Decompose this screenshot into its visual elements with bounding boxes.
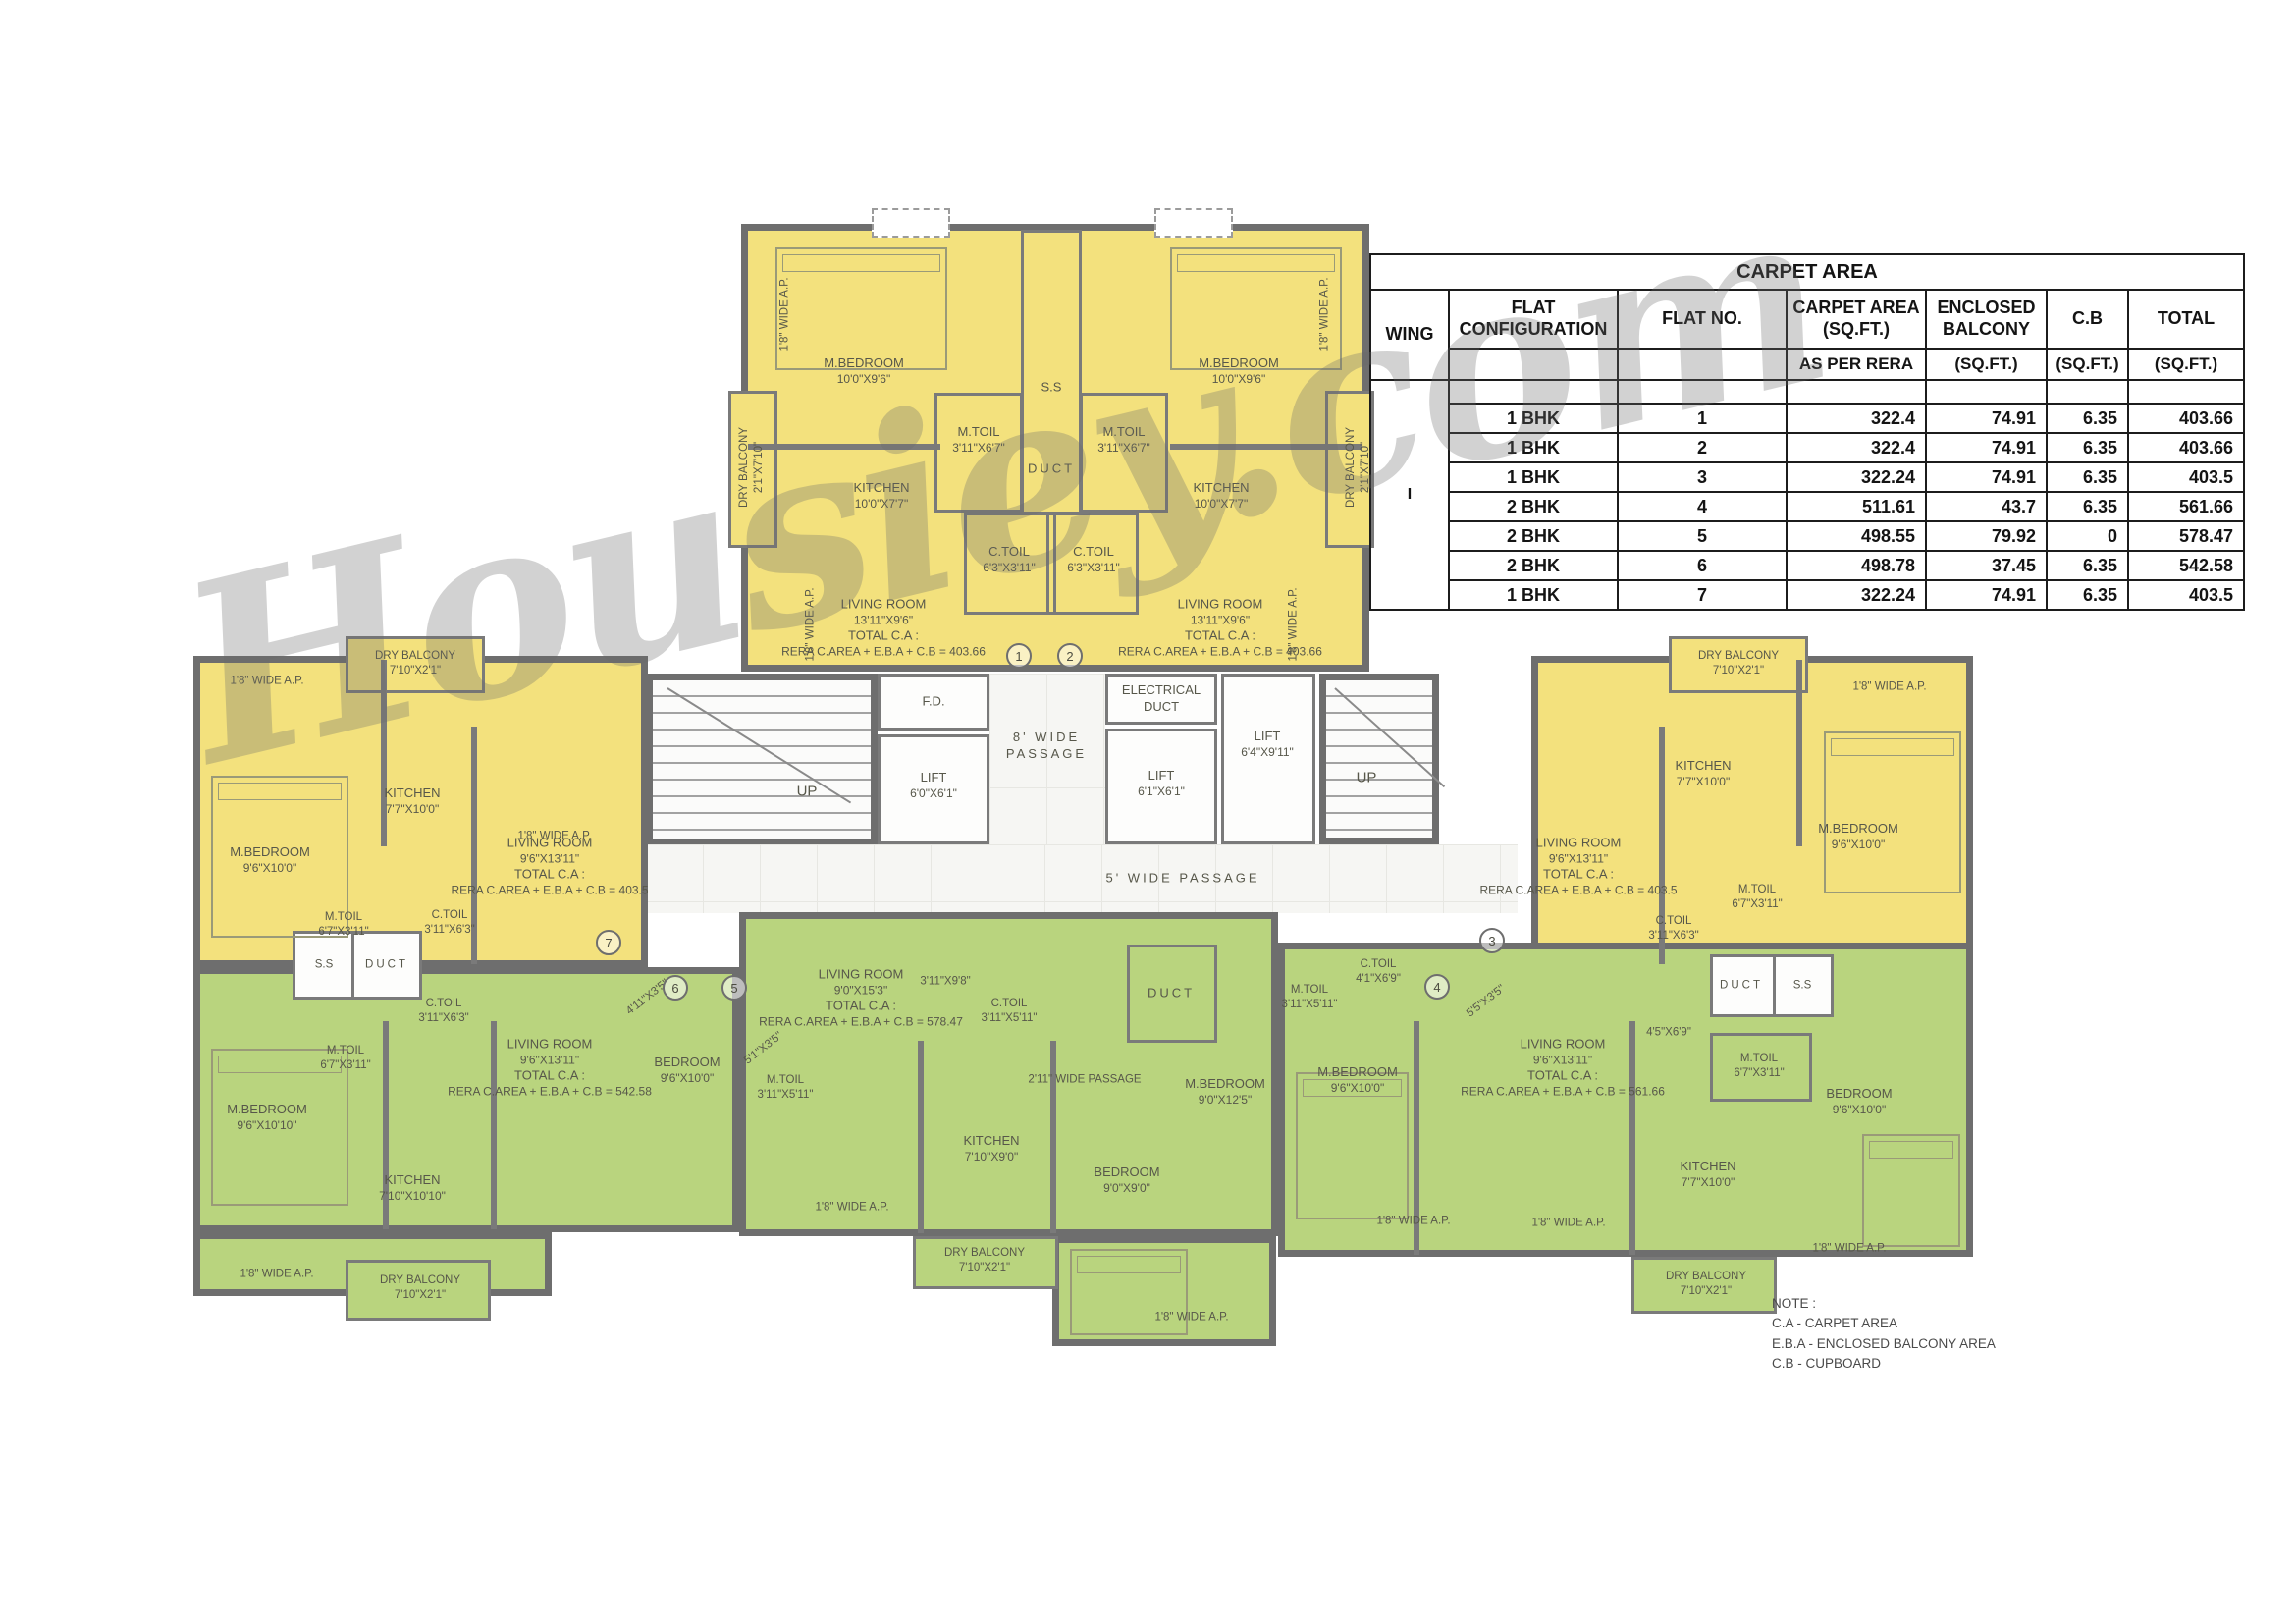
wall-segment (1050, 1041, 1056, 1233)
flat-3-dry-balcony-label: DRY BALCONY7'10"X2'1" (1698, 649, 1779, 678)
table-row: 2 BHK4 511.6143.7 6.35561.66 (1370, 492, 2244, 521)
wide-ap-label: 1'8" WIDE A.P. (1287, 587, 1302, 661)
subheader-sqft: (SQ.FT.) (1926, 349, 2047, 380)
passage-8ft-label: 8' WIDEPASSAGE (1006, 730, 1087, 763)
staircase-left (646, 674, 878, 846)
col-header-config: FLATCONFIGURATION (1449, 290, 1618, 349)
flat-4-mbedroom-label: M.BEDROOM9'6"X10'0" (1317, 1064, 1398, 1096)
wall-segment (748, 444, 940, 450)
duct-label-right: DUCT (1720, 979, 1763, 994)
lift-3-label: LIFT6'4"X9'11" (1241, 729, 1294, 760)
wide-ap-label: 1'8" WIDE A.P. (230, 675, 303, 689)
subheader-config (1449, 349, 1618, 380)
subheader-sqft: (SQ.FT.) (2128, 349, 2244, 380)
wide-ap-label: 1'8" WIDE A.P. (240, 1268, 313, 1282)
flat-4-ctoil-label: C.TOIL4'1"X6'9" (1356, 957, 1401, 987)
flat-number-badge-7: 7 (596, 930, 621, 955)
wall-segment (1170, 444, 1362, 450)
wing-value-cell: I (1370, 380, 1449, 610)
note-line: C.A - CARPET AREA (1772, 1314, 1996, 1333)
flat-5-dry-balcony-label: DRY BALCONY7'10"X2'1" (944, 1246, 1025, 1275)
flat-6-living-label: LIVING ROOM9'6"X13'11" TOTAL C.A :RERA C… (448, 1037, 652, 1101)
col-header-wing: WING (1370, 290, 1449, 380)
flat-6-dry-balcony-label: DRY BALCONY7'10"X2'1" (380, 1273, 460, 1303)
staircase-right (1319, 674, 1439, 844)
wide-ap-label: 1'8" WIDE A.P. (1154, 1311, 1228, 1326)
bed-flat-3 (1824, 731, 1961, 893)
bed-flat-1 (775, 247, 947, 370)
flat-4-kitchen-label: KITCHEN7'7"X10'0" (1680, 1159, 1735, 1190)
wide-ap-label: 1'8" WIDE A.P. (1318, 277, 1333, 351)
table-row: 1 BHK7 322.2474.91 6.35403.5 (1370, 580, 2244, 610)
passage-5ft-label: 5' WIDE PASSAGE (1105, 871, 1259, 888)
wall-segment (351, 933, 354, 998)
flat-number-badge-5: 5 (721, 975, 747, 1001)
flat-5-mtoil-label: M.TOIL3'11"X5'11" (758, 1073, 814, 1103)
flat-4-mtoil-label: M.TOIL3'11"X5'11" (1282, 983, 1338, 1012)
flat-4-passage2-label: 4'5"X6'9" (1646, 1026, 1691, 1041)
lift-1-label: LIFT6'0"X6'1" (910, 770, 957, 801)
flat-5-ctoil-label: C.TOIL3'11"X5'11" (982, 997, 1038, 1026)
flat-number-badge-4: 4 (1424, 974, 1450, 1000)
note-line: C.B - CUPBOARD (1772, 1354, 1996, 1374)
note-title: NOTE : (1772, 1294, 1996, 1314)
wide-ap-label: 1'8" WIDE A.P. (1531, 1217, 1605, 1231)
flat-5-bedroom-label: BEDROOM9'0"X9'0" (1094, 1164, 1159, 1196)
col-header-cb: C.B (2047, 290, 2128, 349)
col-header-flatno: FLAT NO. (1618, 290, 1787, 349)
ss-label-top: S.S (1041, 380, 1062, 397)
col-header-carpet: CARPET AREA(SQ.FT.) (1787, 290, 1926, 349)
table-row: 1 BHK2 322.474.91 6.35403.66 (1370, 433, 2244, 462)
flat-2-mbedroom-label: M.BEDROOM10'0"X9'6" (1199, 355, 1279, 387)
table-row: 2 BHK5 498.5579.92 0578.47 (1370, 521, 2244, 551)
flat-5-duct-label: DUCT (1148, 986, 1195, 1002)
vent-box-right (1154, 208, 1233, 238)
flat-5-passage-211-label: 2'11" WIDE PASSAGE (1028, 1073, 1141, 1088)
flat-7-mbedroom-label: M.BEDROOM9'6"X10'0" (230, 844, 310, 876)
flat-7-dry-balcony-label: DRY BALCONY7'10"X2'1" (375, 649, 455, 678)
duct-label-left: DUCT (365, 958, 408, 973)
col-header-balcony: ENCLOSEDBALCONY (1926, 290, 2047, 349)
ss-label-right: S.S (1793, 979, 1812, 994)
passage-5ft (646, 844, 1518, 913)
flat-7-living-label: LIVING ROOM9'6"X13'11" TOTAL C.A :RERA C… (451, 836, 648, 899)
flat-6-mbedroom-label: M.BEDROOM9'6"X10'10" (227, 1102, 307, 1133)
wide-ap-label: 1'8" WIDE A.P. (517, 830, 591, 844)
table-row: 1 BHK3 322.2474.91 6.35403.5 (1370, 462, 2244, 492)
flat-number-badge-6: 6 (663, 975, 688, 1001)
wall-segment (1796, 660, 1802, 846)
flat-4-mtoil2-label: M.TOIL6'7"X3'11" (1734, 1052, 1784, 1081)
flat-number-badge-1: 1 (1006, 643, 1032, 669)
wide-ap-label: 1'8" WIDE A.P. (1812, 1242, 1886, 1257)
flat-3-kitchen-label: KITCHEN7'7"X10'0" (1675, 758, 1731, 789)
flat-2-mtoil-label: M.TOIL3'11"X6'7" (1097, 424, 1150, 456)
flat-6-mtoil-label: M.TOIL6'7"X3'11" (320, 1044, 370, 1073)
subheader-sqft: (SQ.FT.) (2047, 349, 2128, 380)
flat-3-mtoil-label: M.TOIL6'7"X3'11" (1732, 883, 1782, 912)
up-label-left: UP (797, 782, 818, 801)
bed-flat-4 (1862, 1134, 1960, 1247)
wall-segment (1773, 956, 1776, 1015)
flat-4-living-label: LIVING ROOM9'6"X13'11" TOTAL C.A :RERA C… (1461, 1037, 1665, 1101)
flat-2-kitchen-label: KITCHEN10'0"X7'7" (1193, 480, 1249, 512)
flat-number-badge-2: 2 (1057, 643, 1083, 669)
floor-plan-canvas: M.BEDROOM10'0"X9'6" M.BEDROOM10'0"X9'6" … (0, 0, 2296, 1624)
wide-ap-label: 1'8" WIDE A.P. (1376, 1215, 1450, 1229)
flat-7-mtoil-label: M.TOIL6'7"X3'11" (318, 910, 368, 940)
flat-2-ctoil-label: C.TOIL6'3"X3'11" (1067, 544, 1120, 575)
flat-5-mbedroom-label: M.BEDROOM9'0"X12'5" (1185, 1076, 1265, 1108)
flat-6-bedroom-label: BEDROOM9'6"X10'0" (654, 1055, 720, 1086)
carpet-area-table: CARPET AREA WING FLATCONFIGURATION FLAT … (1369, 253, 2245, 611)
flat-5-passage2-label: 3'11"X9'8" (920, 975, 970, 990)
table-row: 2 BHK6 498.7837.45 6.35542.58 (1370, 551, 2244, 580)
flat-1-kitchen-label: KITCHEN10'0"X7'7" (853, 480, 909, 512)
wide-ap-label: 1'8" WIDE A.P. (778, 277, 793, 351)
note-line: E.B.A - ENCLOSED BALCONY AREA (1772, 1334, 1996, 1354)
flat-6-kitchen-label: KITCHEN7'10"X10'10" (379, 1172, 446, 1204)
flat-1-ctoil-label: C.TOIL6'3"X3'11" (983, 544, 1036, 575)
wall-segment (381, 660, 387, 846)
flat-3-living-label: LIVING ROOM9'6"X13'11" TOTAL C.A :RERA C… (1479, 836, 1677, 899)
flat-4-bedroom-label: BEDROOM9'6"X10'0" (1826, 1086, 1892, 1117)
flat-2-dry-balcony-label: DRY BALCONY2'1"X7'10" (1344, 427, 1373, 508)
wide-ap-label: 1'8" WIDE A.P. (1852, 680, 1926, 695)
ss-label-left: S.S (315, 958, 334, 973)
flat-1-dry-balcony-label: DRY BALCONY2'1"X7'10" (737, 427, 767, 508)
flat-7-ctoil-label: C.TOIL3'11"X6'3" (424, 908, 474, 938)
flat-3-mbedroom-label: M.BEDROOM9'6"X10'0" (1818, 821, 1898, 852)
flat-1-mbedroom-label: M.BEDROOM10'0"X9'6" (824, 355, 904, 387)
note-block: NOTE : C.A - CARPET AREA E.B.A - ENCLOSE… (1772, 1294, 1996, 1374)
wall-segment (918, 1041, 924, 1233)
col-header-total: TOTAL (2128, 290, 2244, 349)
wide-ap-label: 1'8" WIDE A.P. (815, 1201, 888, 1216)
flat-6-ctoil-label: C.TOIL3'11"X6'3" (418, 997, 468, 1026)
table-title: CARPET AREA (1370, 254, 2244, 290)
duct-label-top: DUCT (1028, 461, 1075, 478)
subheader-flatno (1618, 349, 1787, 380)
flat-5-kitchen-label: KITCHEN7'10"X9'0" (963, 1133, 1019, 1164)
wide-ap-label: 1'8" WIDE A.P. (804, 587, 819, 661)
bed-flat-2 (1170, 247, 1342, 370)
subheader-rera: AS PER RERA (1787, 349, 1926, 380)
flat-7-kitchen-label: KITCHEN7'7"X10'0" (384, 785, 440, 817)
table-row: 1 BHK1 322.474.91 6.35403.66 (1370, 404, 2244, 433)
lift-2-label: LIFT6'1"X6'1" (1138, 768, 1185, 799)
flat-1-mtoil-label: M.TOIL3'11"X6'7" (952, 424, 1005, 456)
up-label-right: UP (1357, 768, 1377, 787)
flat-4-dry-balcony-label: DRY BALCONY7'10"X2'1" (1666, 1270, 1746, 1299)
fire-duct-label: F.D. (922, 694, 944, 711)
vent-box-left (872, 208, 950, 238)
electrical-duct-label: ELECTRICALDUCT (1122, 682, 1201, 716)
flat-3-ctoil-label: C.TOIL3'11"X6'3" (1648, 914, 1698, 944)
flat-number-badge-3: 3 (1479, 928, 1505, 953)
